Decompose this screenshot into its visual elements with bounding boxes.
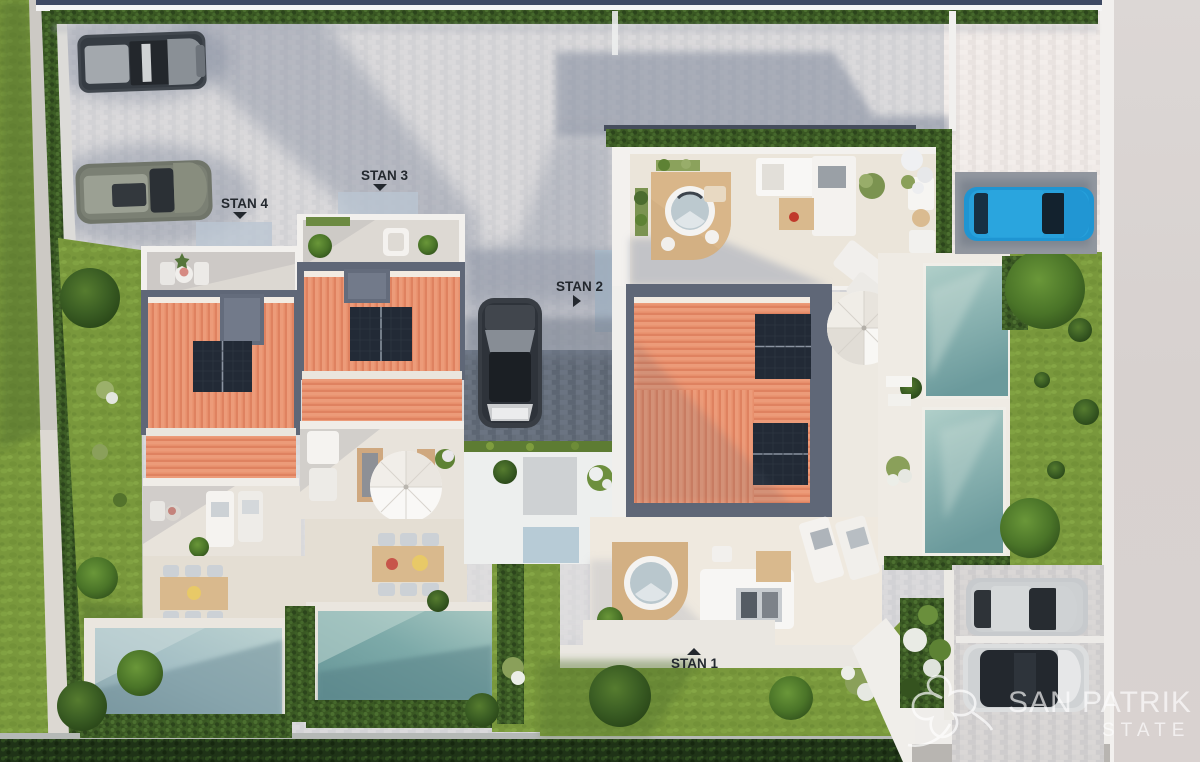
svg-text:STAN 2: STAN 2: [556, 279, 603, 294]
svg-text:STAN 4: STAN 4: [221, 196, 268, 211]
svg-text:STATE: STATE: [1102, 720, 1190, 741]
svg-text:SAN PATRIK: SAN PATRIK: [1008, 686, 1192, 719]
svg-text:STAN 1: STAN 1: [671, 656, 718, 671]
svg-text:STAN 3: STAN 3: [361, 168, 408, 183]
